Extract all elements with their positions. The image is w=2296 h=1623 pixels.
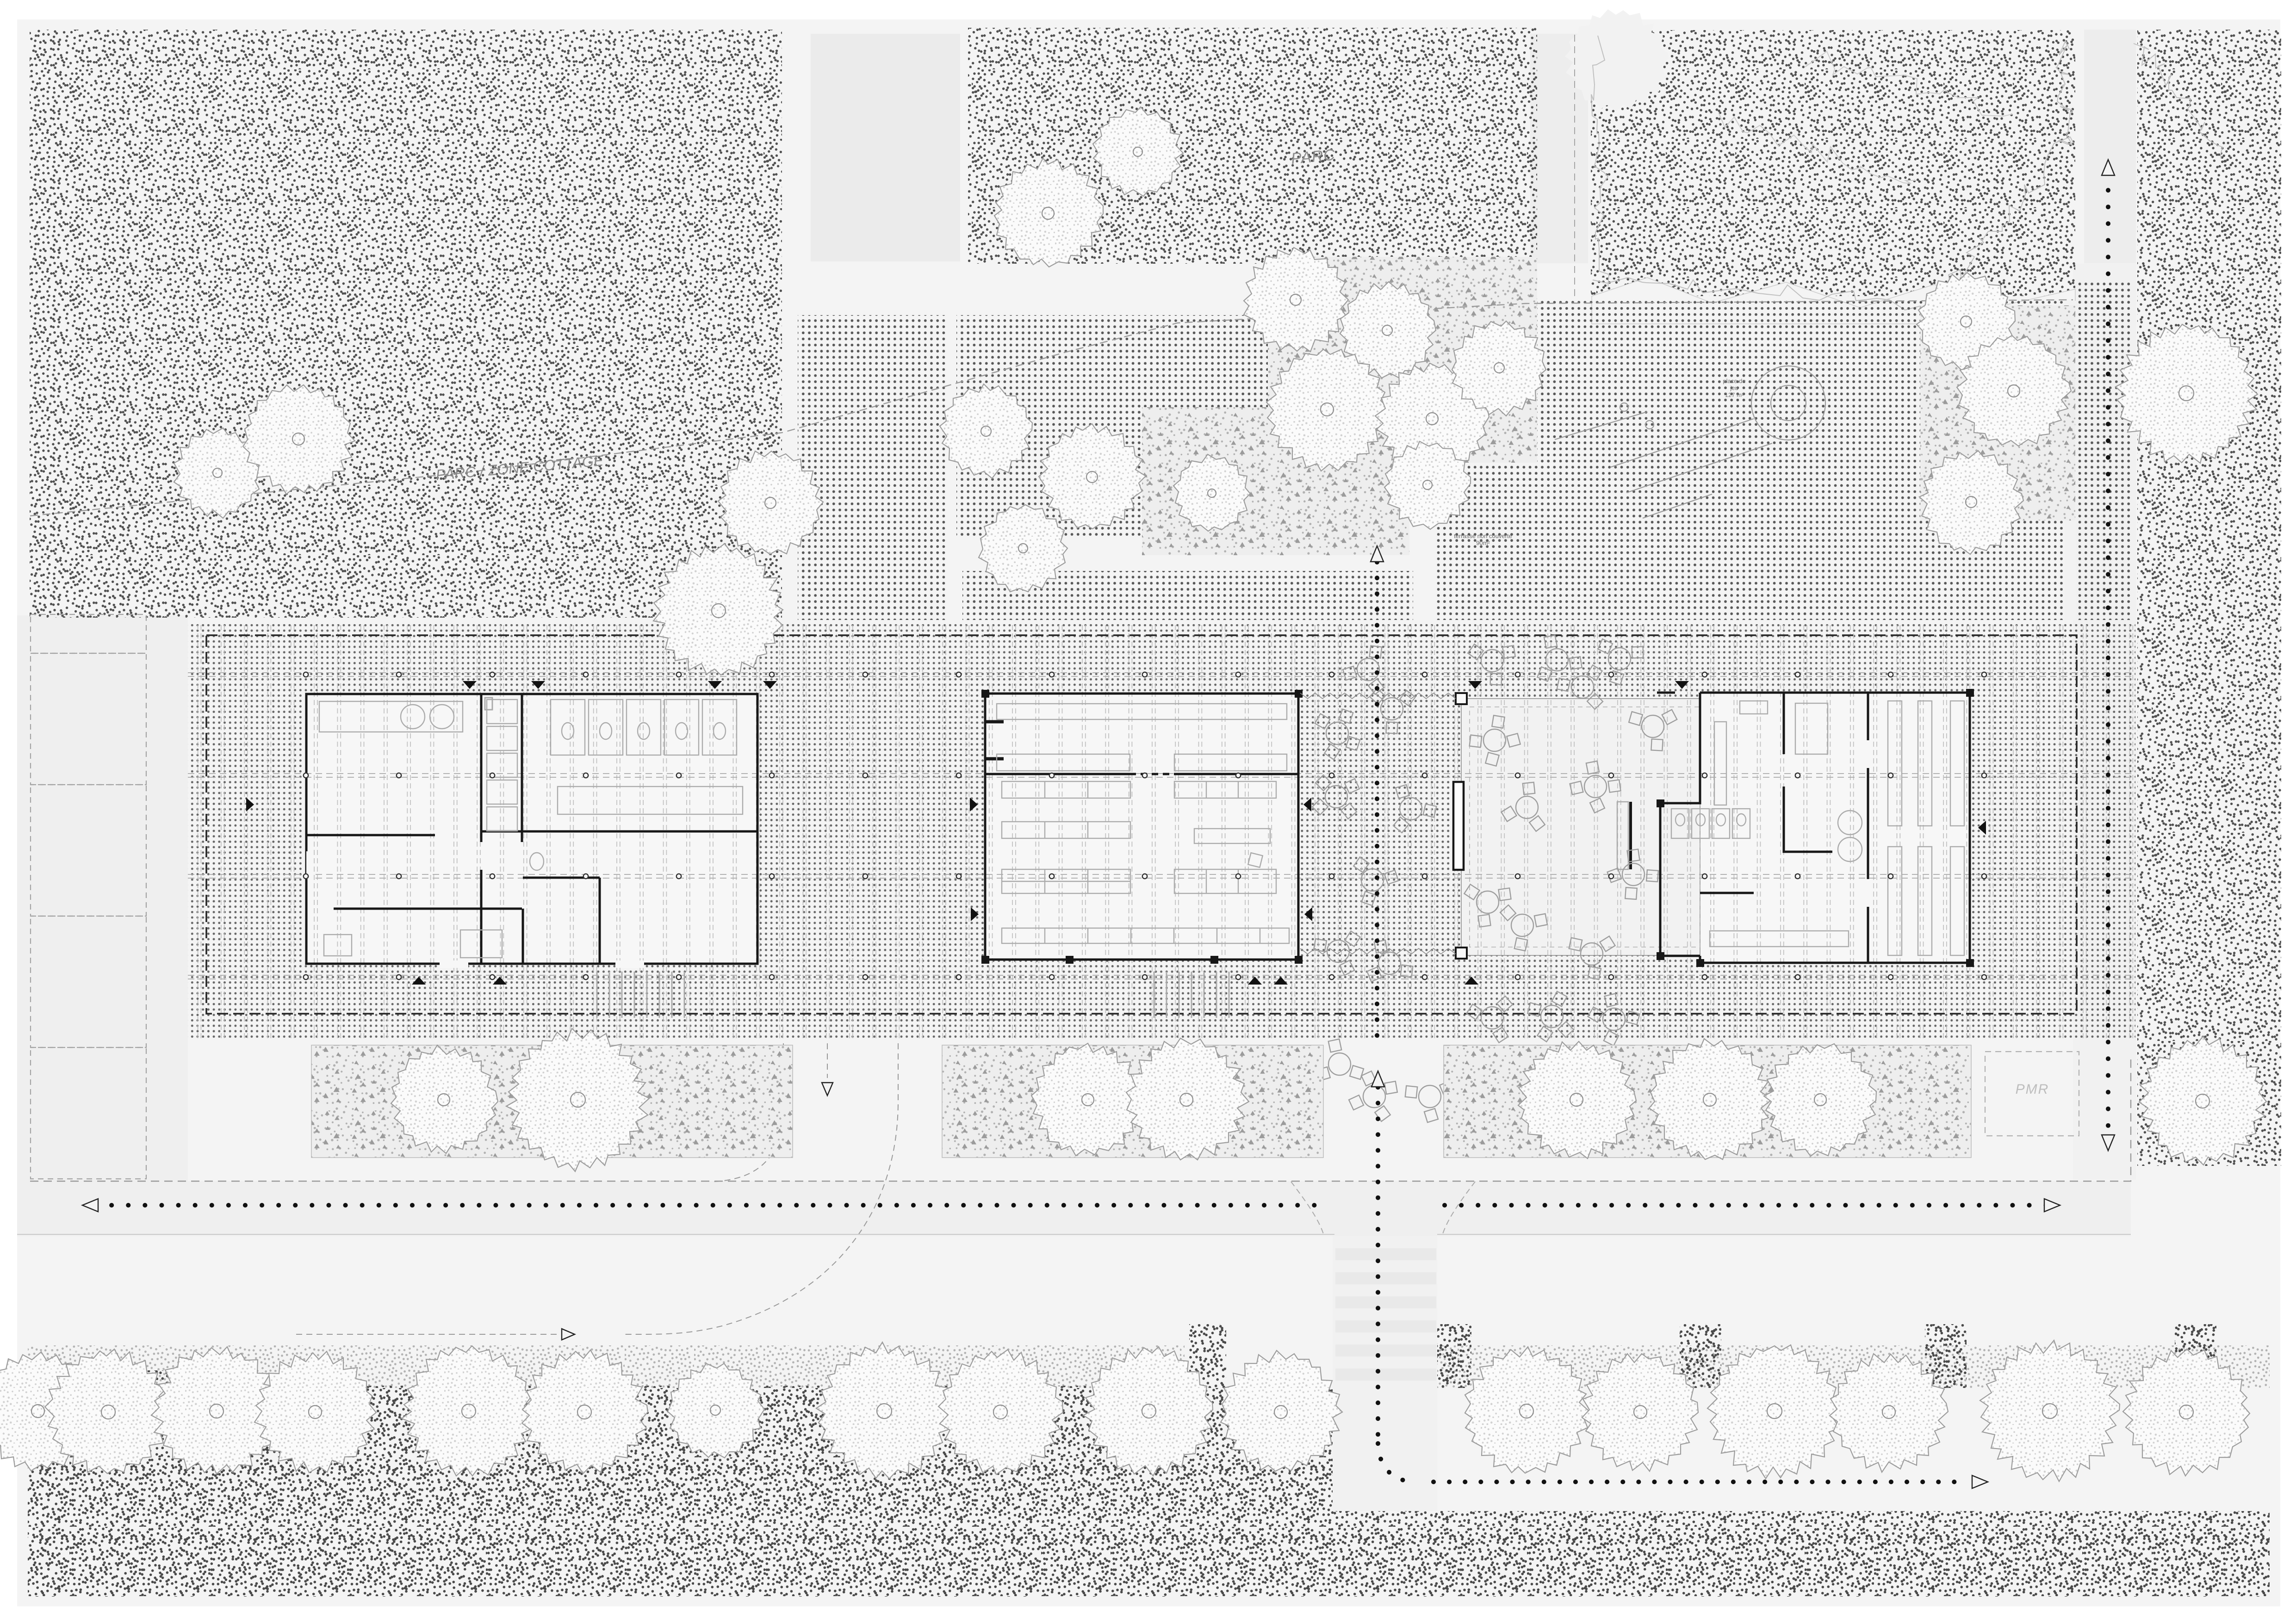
svg-text:PMR: PMR [2016, 1082, 2049, 1097]
svg-text:jeu: jeu [1730, 384, 1738, 391]
svg-text:place de: place de [1723, 378, 1745, 384]
svg-text:90m²: 90m² [1476, 539, 1490, 546]
svg-text:127 m²: 127 m² [1725, 391, 1744, 398]
svg-text:terrasse non couverte: terrasse non couverte [1454, 533, 1512, 539]
